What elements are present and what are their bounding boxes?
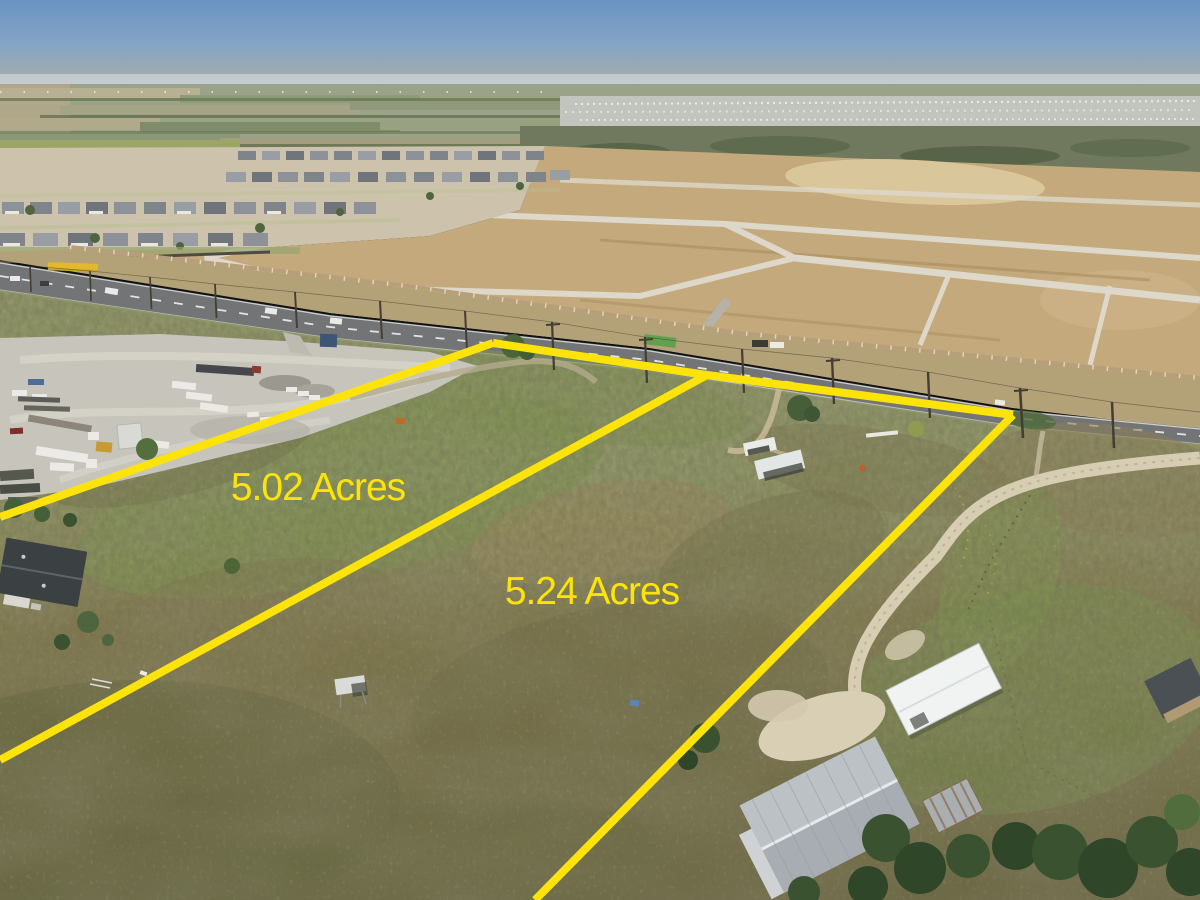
aerial-photo-canvas: 5.02 Acres 5.24 Acres — [0, 0, 1200, 900]
red-marker — [859, 465, 865, 471]
blue-container — [320, 334, 337, 348]
aerial-listing-photo: 5.02 Acres 5.24 Acres — [0, 0, 1200, 900]
tree — [136, 438, 158, 460]
parcel-label-5-24-acres: 5.24 Acres — [505, 570, 680, 613]
parcel-label-5-02-acres: 5.02 Acres — [231, 466, 406, 509]
small-tree — [908, 421, 924, 437]
yellow-excavator — [96, 441, 113, 452]
orange-tractor — [396, 418, 405, 425]
bush — [224, 558, 240, 574]
